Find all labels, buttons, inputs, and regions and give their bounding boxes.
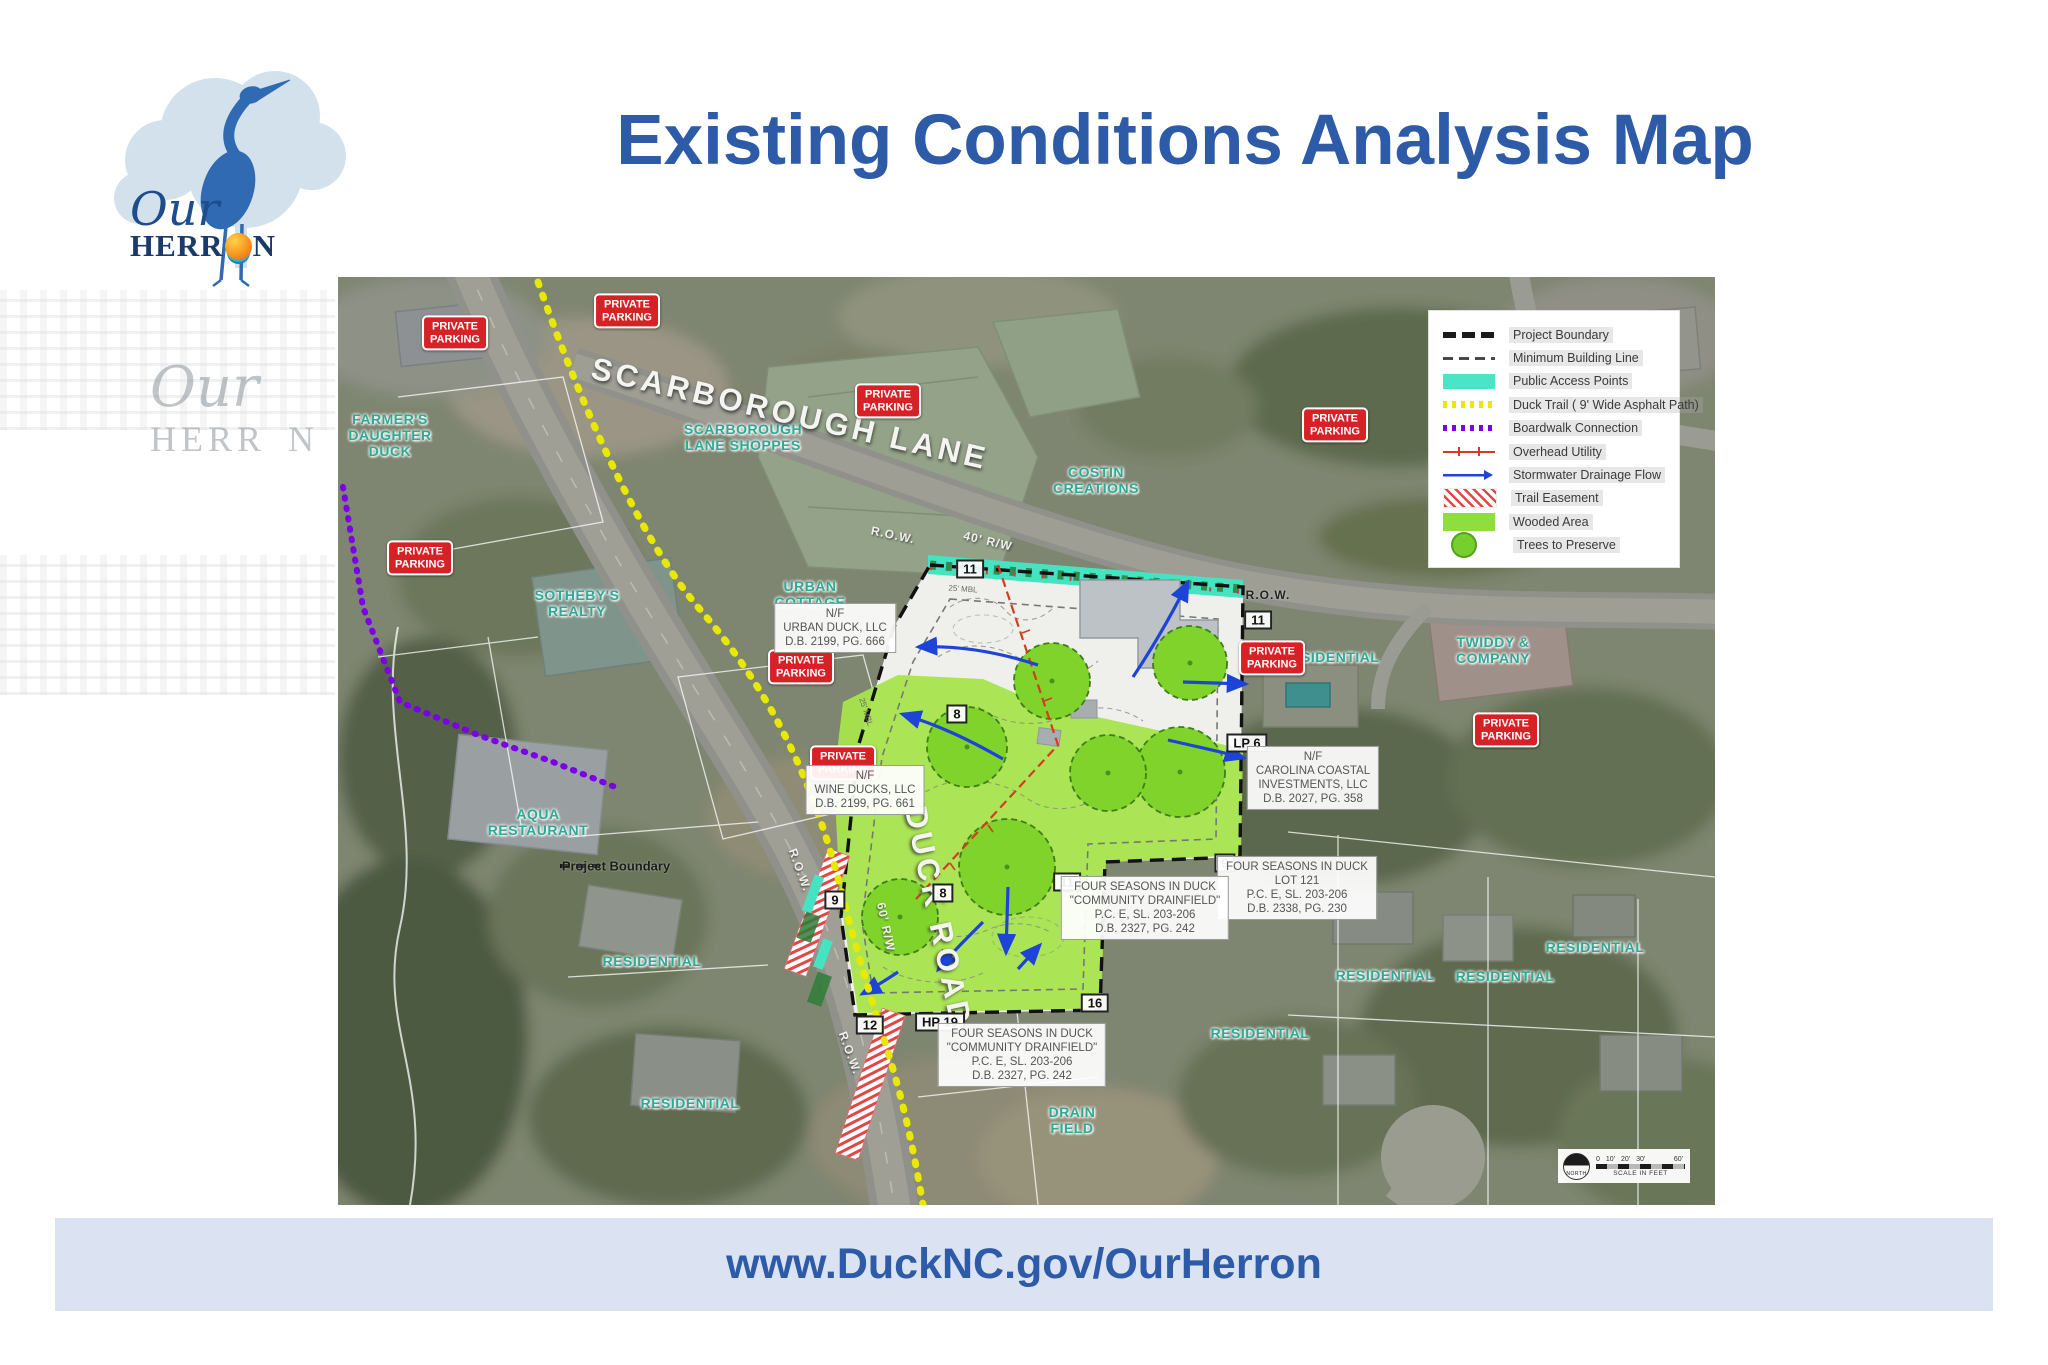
legend-label: Boardwalk Connection bbox=[1509, 420, 1642, 436]
slide-page: Our HERR N Our HERR N Existing Condition… bbox=[0, 0, 2048, 1365]
north-label: NORTH bbox=[1564, 1171, 1589, 1177]
minimum-building-line-symbol-icon bbox=[1443, 348, 1495, 368]
logo-herron-suffix: N bbox=[253, 228, 276, 264]
private-parking-badge: PRIVATE PARKING bbox=[594, 293, 660, 328]
parcel-note: FOUR SEASONS IN DUCK"COMMUNITY DRAINFIEL… bbox=[938, 1023, 1106, 1087]
scale-bar-body: 010'20'30'60' SCALE IN FEET bbox=[1596, 1156, 1685, 1177]
project-boundary-symbol-icon bbox=[1443, 325, 1495, 345]
scale-ticks: 010'20'30'60' bbox=[1596, 1156, 1685, 1163]
map-point-marker: 11 bbox=[956, 560, 984, 579]
scale-tick: 20' bbox=[1621, 1156, 1630, 1163]
map-point-marker: 12 bbox=[856, 1016, 884, 1035]
place-label-scarborough-lane-shoppes: SCARBOROUGH LANE SHOPPES bbox=[684, 421, 802, 453]
mbl-label: 25' MBL bbox=[948, 583, 978, 594]
road-label-scarborough-lane: SCARBOROUGH LANE bbox=[588, 351, 992, 478]
legend-row-boardwalk-connection: Boardwalk Connection bbox=[1443, 417, 1665, 440]
scale-tick: 30' bbox=[1636, 1156, 1645, 1163]
footer-url: www.DuckNC.gov/OurHerron bbox=[726, 1240, 1322, 1289]
row-label: R.O.W. bbox=[1246, 588, 1291, 602]
private-parking-badge: PRIVATE PARKING bbox=[1473, 712, 1539, 747]
legend-label: Project Boundary bbox=[1509, 327, 1613, 343]
place-label-residential: RESIDENTIAL bbox=[1456, 968, 1555, 984]
legend-label: Duck Trail ( 9' Wide Asphalt Path) bbox=[1509, 397, 1703, 413]
legend-row-stormwater-drainage: Stormwater Drainage Flow bbox=[1443, 463, 1665, 486]
road-label-duck-road: DUCK ROAD bbox=[897, 803, 979, 1031]
map-point-marker: 8 bbox=[932, 884, 953, 903]
trail-easement-symbol-icon bbox=[1443, 488, 1497, 508]
legend-row-trail-easement: Trail Easement bbox=[1443, 487, 1665, 510]
mbl-label: 25' MBL bbox=[857, 697, 875, 727]
road-width-label: 60' R/W bbox=[874, 901, 898, 953]
map-point-marker: 8 bbox=[946, 705, 967, 724]
boardwalk-connection-symbol-icon bbox=[1443, 418, 1495, 438]
project-boundary-label: Project Boundary bbox=[562, 859, 670, 874]
road-width-label: 40' R/W bbox=[962, 529, 1014, 554]
private-parking-badge: PRIVATE PARKING bbox=[422, 315, 488, 350]
parcel-note: N/FCAROLINA COASTALINVESTMENTS, LLCD.B. … bbox=[1247, 746, 1379, 810]
place-label-residential: RESIDENTIAL bbox=[1336, 967, 1435, 983]
legend-label: Minimum Building Line bbox=[1509, 350, 1643, 366]
scale-tick: 60' bbox=[1674, 1156, 1683, 1163]
footer-bar: www.DuckNC.gov/OurHerron bbox=[55, 1218, 1993, 1311]
ghost-logo-artifact: Our HERR N bbox=[150, 360, 350, 460]
legend-row-trees-to-preserve: Trees to Preserve bbox=[1443, 534, 1665, 557]
legend-label: Trail Easement bbox=[1511, 490, 1603, 506]
parcel-note: FOUR SEASONS IN DUCKLOT 121P.C. E, SL. 2… bbox=[1217, 856, 1377, 920]
scale-caption: SCALE IN FEET bbox=[1596, 1170, 1685, 1177]
render-artifact-noise bbox=[0, 555, 335, 695]
row-label: R.O.W. bbox=[786, 847, 814, 894]
legend-row-duck-trail: Duck Trail ( 9' Wide Asphalt Path) bbox=[1443, 393, 1665, 416]
duck-trail-symbol-icon bbox=[1443, 395, 1495, 415]
place-label-aqua-restaurant: AQUA RESTAURANT bbox=[488, 806, 588, 838]
private-parking-badge: PRIVATE PARKING bbox=[1239, 640, 1305, 675]
parcel-note: FOUR SEASONS IN DUCK"COMMUNITY DRAINFIEL… bbox=[1061, 876, 1229, 940]
scale-tick: 0 bbox=[1596, 1156, 1600, 1163]
place-label-residential: RESIDENTIAL bbox=[641, 1095, 740, 1111]
trees-to-preserve-symbol-icon bbox=[1451, 532, 1477, 558]
logo-herron-text: HERR N bbox=[130, 228, 350, 264]
private-parking-badge: PRIVATE PARKING bbox=[387, 540, 453, 575]
wooded-area-symbol-icon bbox=[1443, 513, 1495, 531]
stormwater-drainage-symbol-icon bbox=[1443, 465, 1495, 485]
place-label-costin-creations: COSTIN CREATIONS bbox=[1053, 464, 1139, 496]
page-title: Existing Conditions Analysis Map bbox=[480, 100, 1890, 181]
our-herron-logo: Our HERR N bbox=[90, 38, 360, 288]
logo-herron-prefix: HERR bbox=[130, 228, 224, 264]
map-point-marker: 9 bbox=[824, 891, 845, 910]
ghost-herron-text: HERR N bbox=[150, 418, 350, 460]
legend-label: Public Access Points bbox=[1509, 373, 1632, 389]
place-label-residential: RESIDENTIAL bbox=[603, 953, 702, 969]
map-point-marker: 11 bbox=[1244, 611, 1272, 630]
north-arrow-icon: NORTH bbox=[1563, 1153, 1590, 1180]
ghost-our-text: Our bbox=[150, 360, 350, 416]
sun-icon bbox=[225, 233, 252, 260]
map-annotation-overlay: Project BoundaryMinimum Building LinePub… bbox=[338, 277, 1715, 1205]
row-label: R.O.W. bbox=[836, 1030, 864, 1077]
logo-our-text: Our bbox=[130, 186, 350, 232]
logo-wordmark: Our HERR N bbox=[130, 186, 350, 264]
map-legend: Project BoundaryMinimum Building LinePub… bbox=[1428, 310, 1680, 568]
legend-row-overhead-utility: Overhead Utility bbox=[1443, 440, 1665, 463]
row-label: R.O.W. bbox=[870, 524, 917, 547]
existing-conditions-map: Project BoundaryMinimum Building LinePub… bbox=[338, 277, 1715, 1205]
legend-row-project-boundary: Project Boundary bbox=[1443, 323, 1665, 346]
place-label-sothebys-realty: SOTHEBY'S REALTY bbox=[535, 587, 620, 619]
place-label-twiddy-company: TWIDDY & COMPANY bbox=[1456, 634, 1530, 666]
legend-label: Wooded Area bbox=[1509, 514, 1593, 530]
place-label-farmers-daughter-duck: FARMER'S DAUGHTER DUCK bbox=[348, 411, 431, 459]
legend-row-minimum-building-line: Minimum Building Line bbox=[1443, 346, 1665, 369]
legend-row-wooded-area: Wooded Area bbox=[1443, 510, 1665, 533]
scale-bar: NORTH 010'20'30'60' SCALE IN FEET bbox=[1558, 1149, 1690, 1183]
legend-rows: Project BoundaryMinimum Building LinePub… bbox=[1443, 323, 1665, 557]
place-label-residential: RESIDENTIAL bbox=[1546, 939, 1645, 955]
private-parking-badge: PRIVATE PARKING bbox=[1302, 407, 1368, 442]
scale-line bbox=[1596, 1164, 1685, 1169]
private-parking-badge: PRIVATE PARKING bbox=[855, 383, 921, 418]
overhead-utility-symbol-icon bbox=[1443, 442, 1495, 462]
place-label-drain-field: DRAIN FIELD bbox=[1049, 1104, 1096, 1136]
map-point-marker: 16 bbox=[1081, 994, 1109, 1013]
scale-tick: 10' bbox=[1606, 1156, 1615, 1163]
public-access-points-symbol-icon bbox=[1443, 374, 1495, 389]
parcel-note: N/FWINE DUCKS, LLCD.B. 2199, PG. 661 bbox=[806, 765, 925, 815]
private-parking-badge: PRIVATE PARKING bbox=[768, 649, 834, 684]
legend-label: Trees to Preserve bbox=[1513, 537, 1620, 553]
place-label-residential: RESIDENTIAL bbox=[1211, 1025, 1310, 1041]
legend-label: Stormwater Drainage Flow bbox=[1509, 467, 1665, 483]
legend-label: Overhead Utility bbox=[1509, 444, 1606, 460]
parcel-note: N/FURBAN DUCK, LLCD.B. 2199, PG. 666 bbox=[774, 603, 896, 653]
legend-row-public-access-points: Public Access Points bbox=[1443, 370, 1665, 393]
